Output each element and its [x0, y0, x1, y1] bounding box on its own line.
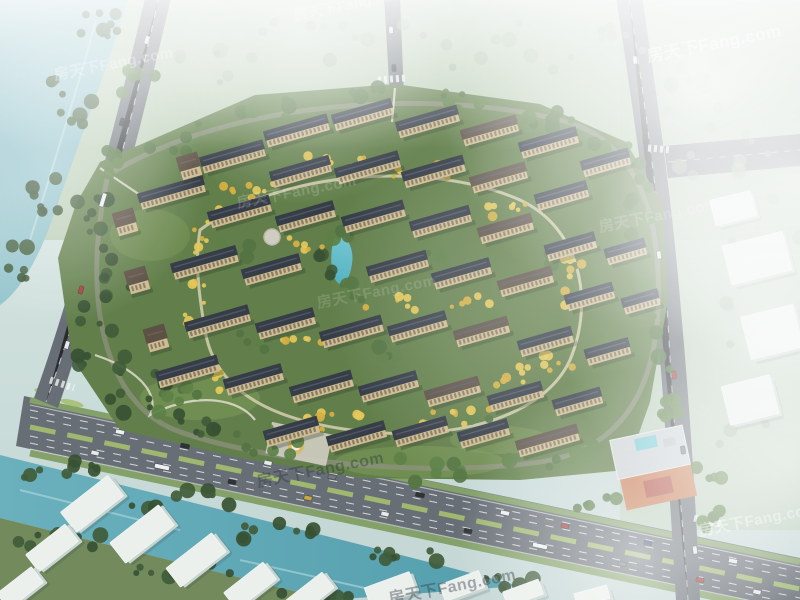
aerial-rendering-image: 房天下Fang.com房天下Fang.com房天下Fang.com房天下Fang…	[0, 0, 800, 600]
scene-rendering: 房天下Fang.com房天下Fang.com房天下Fang.com房天下Fang…	[0, 0, 800, 600]
haze-overlay	[0, 0, 800, 600]
